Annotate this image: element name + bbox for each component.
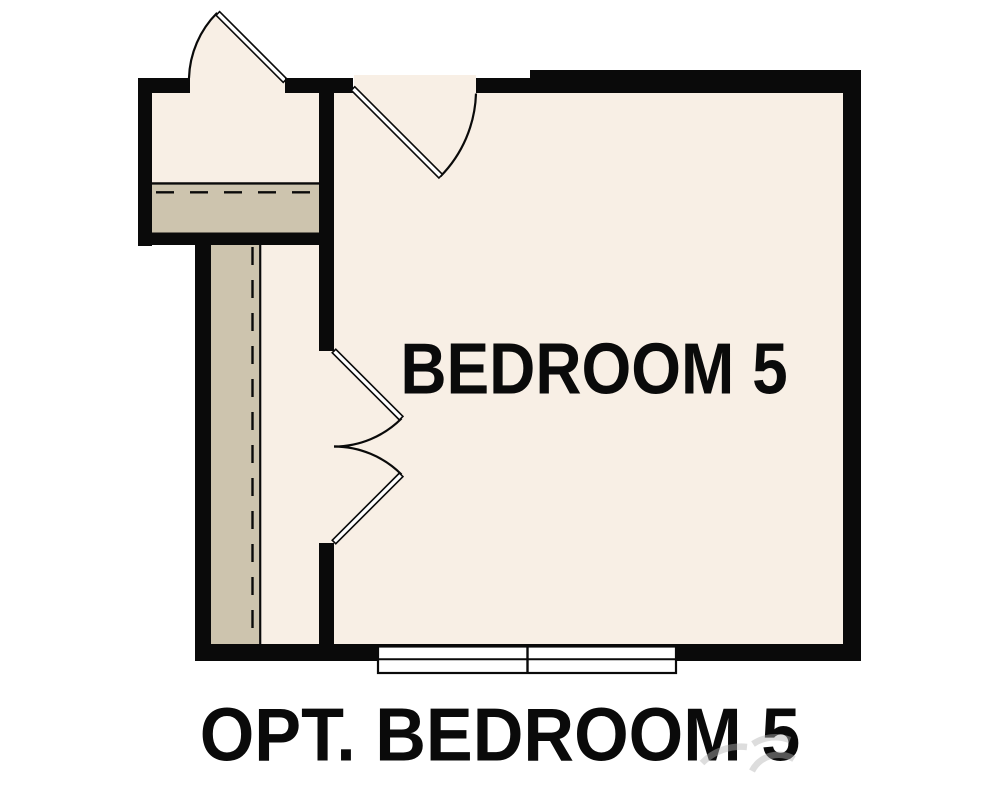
- svg-text:BEDROOM 5: BEDROOM 5: [400, 329, 787, 409]
- svg-text:OPT. BEDROOM 5: OPT. BEDROOM 5: [200, 693, 801, 777]
